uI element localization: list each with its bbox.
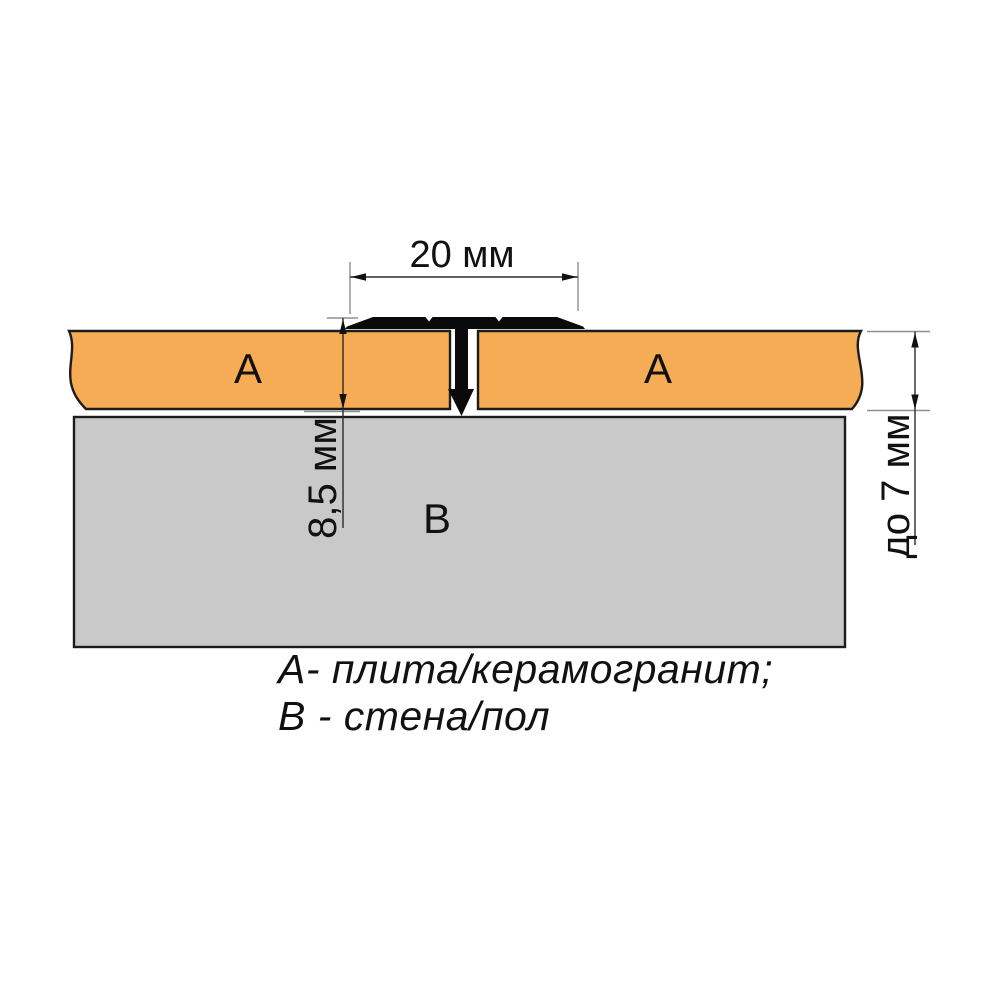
diagram-canvas: 20 мм 8,5 мм до 7 мм А А В А- плита/кера… bbox=[0, 0, 1000, 1000]
width-arrow-left-icon bbox=[351, 273, 366, 281]
tile-right-label: А bbox=[644, 345, 672, 392]
t-profile-installation-diagram: 20 мм 8,5 мм до 7 мм А А В А- плита/кера… bbox=[0, 0, 1000, 1000]
width-arrow-right-icon bbox=[562, 273, 577, 281]
height-arrow-up-icon bbox=[339, 319, 346, 334]
height-dimension-label: 8,5 мм bbox=[301, 417, 345, 539]
tile-left-label: А bbox=[234, 345, 262, 392]
thickness-dimension-label: до 7 мм bbox=[874, 413, 918, 558]
base-label: В bbox=[423, 495, 451, 542]
thickness-arrow-up-icon bbox=[911, 333, 918, 348]
legend-line-b: В - стена/пол bbox=[278, 693, 550, 739]
thickness-arrow-down-icon bbox=[911, 395, 918, 410]
base-block bbox=[74, 417, 845, 647]
profile-anchor-arrow bbox=[448, 389, 474, 416]
legend-line-a: А- плита/керамогранит; bbox=[275, 646, 773, 692]
profile-stem bbox=[455, 326, 468, 390]
width-dimension-label: 20 мм bbox=[409, 234, 514, 276]
